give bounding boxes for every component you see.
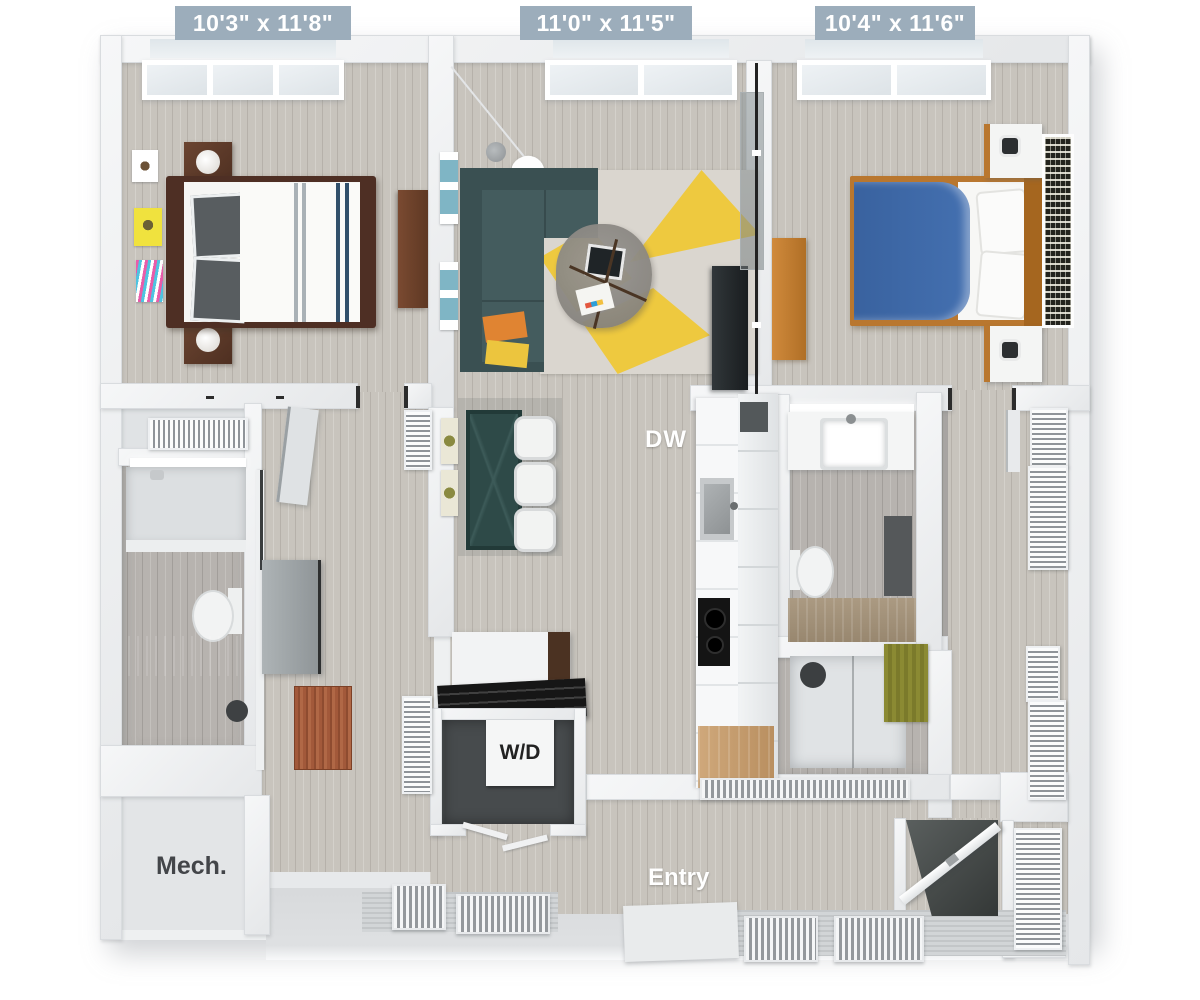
- vanity-sink: [820, 418, 888, 470]
- wall-art: [441, 470, 458, 516]
- wire-shelf: [1026, 646, 1060, 702]
- entry-label: Entry: [648, 864, 709, 892]
- wall-outer-left: [100, 35, 122, 940]
- table-lamp: [1002, 138, 1018, 154]
- wd-closet-wall-top: [430, 708, 586, 720]
- wire-shelf: [1030, 408, 1068, 468]
- pillow: [975, 250, 1031, 320]
- wall-bathR-east: [916, 392, 942, 658]
- window-bedroom-right: [797, 60, 991, 100]
- rug-pattern: [630, 170, 758, 262]
- wall-vent-grille: [700, 778, 910, 800]
- door-jamb-mark: [404, 386, 408, 408]
- floor-plan: W/D: [0, 0, 1200, 1000]
- kitchen-sink: [700, 478, 734, 540]
- window-slot: [553, 39, 729, 58]
- dining-chair: [514, 416, 556, 460]
- sliding-barn-door: [262, 560, 321, 674]
- dim-label-bedroom-left: 10'3" x 11'8": [175, 6, 351, 40]
- closet-door-mark: [276, 396, 284, 399]
- toilet: [796, 546, 834, 598]
- wall-under-bedroomL-b: [404, 383, 432, 409]
- shower-head: [150, 470, 164, 480]
- wire-shelf: [404, 410, 432, 470]
- dim-text: 10'4" x 11'6": [825, 10, 965, 37]
- footboard: [360, 180, 374, 326]
- floor-grate: [834, 916, 924, 962]
- door-jamb-mark: [1012, 388, 1016, 410]
- wire-shelf: [402, 696, 432, 794]
- mech-room-label: Mech.: [156, 852, 227, 881]
- window-pane: [213, 65, 273, 95]
- sofa-back: [460, 168, 482, 370]
- toilet: [192, 590, 234, 642]
- sofa-seam: [482, 300, 544, 302]
- sink-faucet: [846, 414, 856, 424]
- wire-shelf: [1028, 466, 1068, 570]
- wall-art: [132, 150, 158, 182]
- dresser: [398, 190, 428, 308]
- sliding-glass-door: [740, 92, 764, 270]
- shower-ledge: [126, 540, 246, 552]
- rug-olive: [884, 644, 928, 722]
- wall-bathL-bottom: [100, 745, 262, 797]
- window-pane: [644, 65, 732, 95]
- washer-dryer-label: W/D: [500, 741, 541, 765]
- shower-drain: [800, 662, 826, 688]
- rug-rust-runner: [294, 686, 352, 770]
- window-slot: [805, 39, 983, 58]
- burner: [706, 636, 724, 654]
- wd-closet-wall-right: [574, 708, 586, 836]
- window-pane: [897, 65, 986, 95]
- wall-art: [440, 152, 458, 224]
- headboard: [1024, 176, 1042, 326]
- wd-closet-wall-bottom-a: [430, 824, 466, 836]
- table-lamp: [196, 150, 220, 174]
- wall-oven: [740, 402, 768, 432]
- door-handle: [752, 150, 761, 156]
- duvet: [240, 183, 364, 322]
- wall-under-bedroomL-a: [100, 383, 358, 409]
- closet-door-mark: [206, 396, 214, 399]
- closet-shelf: [148, 418, 248, 450]
- burner: [704, 608, 726, 630]
- table-lamp: [196, 328, 220, 352]
- wall-art: [440, 262, 458, 330]
- floor-drain-knob: [226, 700, 248, 722]
- wall-art: [134, 208, 162, 246]
- door-jamb-mark: [948, 388, 952, 410]
- window-bedroom-left: [142, 60, 344, 100]
- pillow: [975, 188, 1030, 256]
- floor-grate: [744, 916, 818, 962]
- pendant-bulb: [486, 142, 506, 162]
- floor-grate: [392, 884, 446, 930]
- sliding-door-track: [755, 63, 758, 407]
- duvet-blue: [854, 182, 970, 320]
- window-pane: [550, 65, 638, 95]
- door-handle: [752, 322, 761, 328]
- shower-light-bar: [130, 458, 246, 467]
- wall-art: [136, 260, 163, 302]
- washer-dryer-unit: W/D: [486, 720, 554, 786]
- door-jamb-mark: [356, 386, 360, 408]
- window-slot: [150, 39, 336, 58]
- cooktop: [698, 598, 730, 666]
- door-mat: [623, 902, 739, 962]
- shower-glass-edge: [852, 656, 854, 768]
- dining-chair: [514, 462, 556, 506]
- open-door-leaf: [1006, 410, 1020, 472]
- window-pane: [279, 65, 339, 95]
- dresser: [772, 238, 806, 360]
- floor-grate: [456, 894, 550, 934]
- dim-label-living: 11'0" x 11'5": [520, 6, 692, 40]
- wd-closet-wall-bottom-b: [550, 824, 586, 836]
- window-pane: [802, 65, 891, 95]
- wall-art: [441, 418, 458, 464]
- tv-panel: [712, 266, 748, 390]
- vanity-light-bar: [790, 404, 914, 412]
- dining-chair: [514, 508, 556, 552]
- bathroom-wood-counter: [788, 598, 916, 642]
- sink-faucet: [730, 502, 738, 510]
- wall-entry-top-east: [950, 774, 1004, 800]
- barn-door-track-line: [260, 470, 263, 570]
- mirror-panel: [884, 516, 912, 596]
- table-lamp: [1002, 342, 1018, 358]
- dim-text: 11'0" x 11'5": [536, 10, 675, 37]
- wire-shelf: [1028, 700, 1066, 800]
- sofa-seam: [544, 190, 546, 238]
- dishwasher-label: DW: [645, 426, 687, 454]
- coat-closet-shelf: [1014, 828, 1062, 950]
- wall-art-abstract: [1042, 134, 1074, 328]
- sink-basin: [704, 484, 730, 534]
- dim-text: 10'3" x 11'8": [193, 10, 333, 37]
- dim-label-bedroom-right: 10'4" x 11'6": [815, 6, 975, 40]
- sofa-back: [480, 168, 598, 190]
- shower-area: [126, 467, 246, 545]
- throw-pillow: [485, 340, 529, 368]
- window-living: [545, 60, 737, 100]
- window-pane: [147, 65, 207, 95]
- vanity-wood: [128, 636, 246, 676]
- wall-mech-right: [244, 795, 270, 935]
